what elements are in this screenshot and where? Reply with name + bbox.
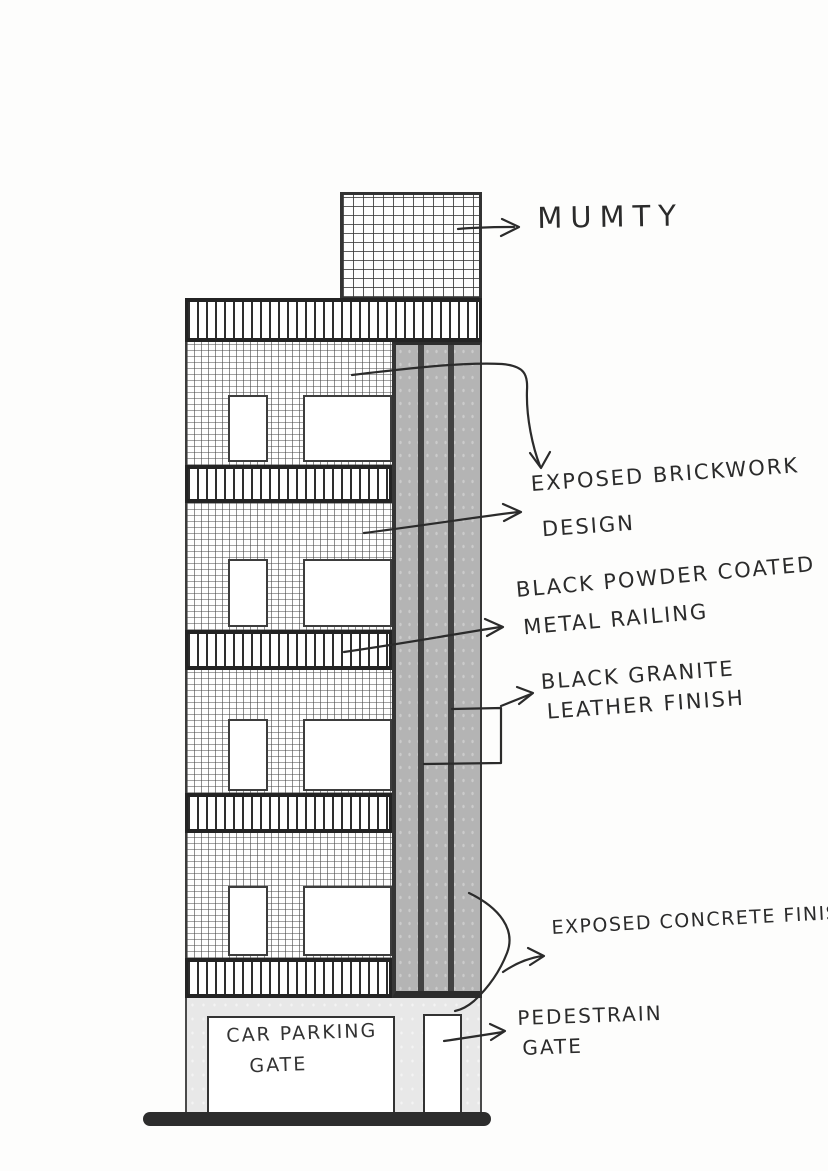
balcony-railing — [185, 793, 392, 833]
pedestrian-gate-label: PEDESTRAIN GATE — [517, 1002, 664, 1060]
brickwork-arrowhead-down — [530, 452, 550, 468]
mumty-block — [340, 192, 482, 300]
railing-arrowhead — [485, 619, 503, 636]
concrete-leader — [503, 956, 542, 972]
concrete-arrowhead — [528, 948, 544, 965]
window — [303, 886, 392, 956]
car-parking-gate-label-line2: GATE — [249, 1052, 379, 1078]
window — [228, 886, 268, 956]
balcony-railing — [185, 958, 392, 998]
pedestrian-gate-label-line2: GATE — [522, 1032, 664, 1060]
brickwork-arrowhead — [503, 504, 521, 521]
window — [228, 719, 268, 791]
granite-stripe — [418, 345, 424, 991]
brickwork-label-line2: DESIGN — [541, 499, 803, 541]
car-parking-gate-label: CAR PARKING GATE — [226, 1021, 379, 1079]
railing-label: BLACK POWDER COATED METAL RAILING — [515, 552, 819, 640]
elevation-sketch: MUMTY EXPOSED BRICKWORK DESIGN BLACK POW… — [0, 0, 828, 1171]
granite-label: BLACK GRANITE LEATHER FINISH — [540, 656, 745, 724]
balcony-railing — [185, 465, 392, 503]
window — [303, 719, 392, 791]
car-parking-gate-label-line1: CAR PARKING — [226, 1020, 378, 1047]
window — [228, 395, 268, 462]
window — [303, 395, 392, 462]
granite-leader — [501, 694, 531, 706]
mumty-label: MUMTY — [537, 199, 684, 235]
parapet-railing — [185, 298, 482, 342]
ground-line — [143, 1112, 491, 1126]
granite-stripe — [448, 345, 454, 991]
granite-label-line2: LEATHER FINISH — [546, 686, 745, 724]
pedestrian-gate-opening — [423, 1014, 462, 1112]
window — [228, 559, 268, 627]
balcony-railing — [185, 630, 392, 670]
pedestrian-arrowhead — [490, 1024, 505, 1040]
granite-arrowhead — [517, 687, 533, 704]
concrete-label: EXPOSED CONCRETE FINISH — [551, 902, 828, 940]
pedestrian-gate-label-line1: PEDESTRAIN — [517, 1001, 663, 1030]
mumty-arrowhead — [501, 219, 519, 236]
facade-column-panel — [392, 342, 482, 998]
brickwork-label: EXPOSED BRICKWORK DESIGN — [530, 453, 803, 542]
brickwork-label-line1: EXPOSED BRICKWORK — [530, 453, 800, 496]
mumty-label-text: MUMTY — [537, 198, 684, 235]
window — [303, 559, 392, 627]
concrete-label-text: EXPOSED CONCRETE FINISH — [551, 901, 828, 939]
